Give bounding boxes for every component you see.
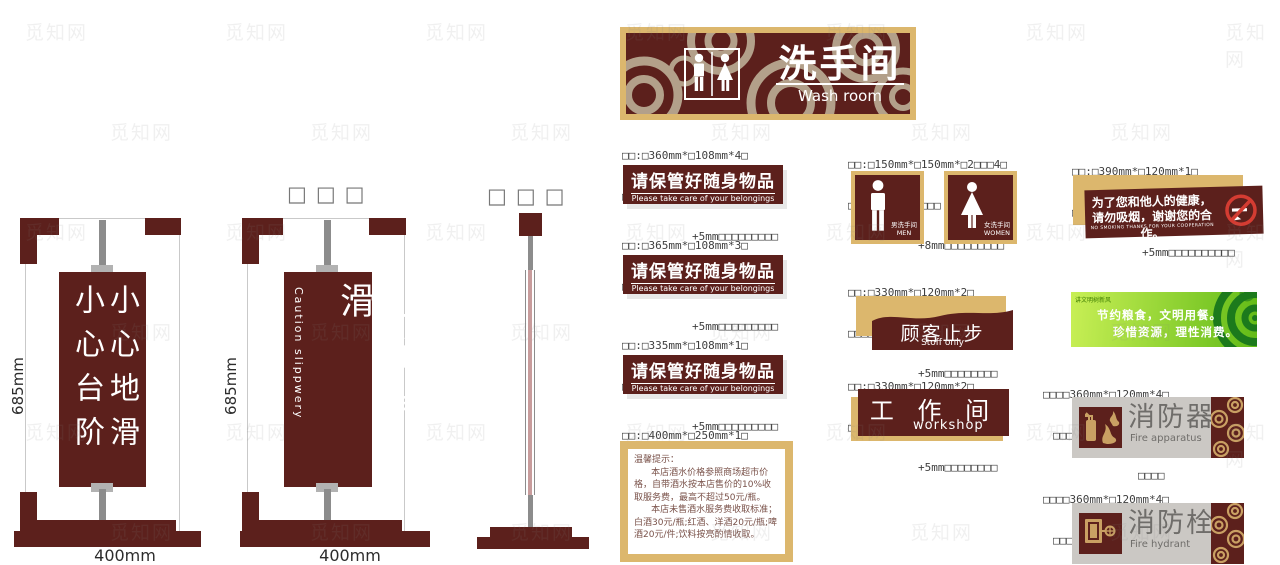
men-label-zh: 男洗手间 <box>891 221 917 229</box>
watermark-text: 觅知网 <box>510 118 573 145</box>
fire-hydrant-icon <box>1079 513 1122 554</box>
fire-hydrant-en: Fire hydrant <box>1130 539 1190 550</box>
watermark-text: 觅知网 <box>425 18 488 45</box>
female-icon <box>957 179 987 239</box>
stand2-height-dimension: 685mm <box>222 341 240 431</box>
belongings-sign-1: 请保管好随身物品 Please take care of your belong… <box>623 165 783 204</box>
circles-panel <box>1211 503 1244 564</box>
women-label: 女洗手间 WOMEN <box>984 221 1010 237</box>
washroom-title-en: Wash room <box>776 87 904 105</box>
stand1-base-step <box>30 520 176 531</box>
spec-line: □□:□335mm*□108mm*1□ <box>622 339 778 353</box>
workshop-sign: 工 作 间 workshop <box>858 389 1009 436</box>
belongings-zh: 请保管好随身物品 <box>623 357 783 382</box>
staff-only-sign: 顾客止步 Stoff only <box>872 306 1013 350</box>
green-line2: 珍惜资源，理性消费。 <box>1113 324 1238 340</box>
signage-design-sheet: 小心台阶 小心地滑 685mm 400mm □□□ Caution slippw… <box>0 0 1280 565</box>
stand1-bracket-top-right <box>145 218 181 235</box>
green-line1: 节约粮食，文明用餐。 <box>1097 307 1222 323</box>
stand2-title-placeholder-boxes: □□□ <box>287 182 374 206</box>
spec-line: □□:□360mm*□108mm*4□ <box>622 149 778 163</box>
men-label-en: MEN <box>891 229 917 237</box>
spec-line: +5mm□□□□□□□□□□ <box>1072 246 1235 260</box>
stand3-title-placeholder-boxes: □□□ <box>487 184 574 208</box>
stand2-english-caption: Caution slippwery <box>292 287 305 482</box>
tips-paragraph-2: 本店未售酒水服务费收取标准；白酒30元/瓶;红酒、洋酒20元/瓶;啤酒20元/件… <box>634 504 779 542</box>
stand3-base-step <box>490 527 572 537</box>
stand3-pole-bottom <box>528 495 533 529</box>
belongings-zh: 请保管好随身物品 <box>623 257 783 282</box>
watermark-text: 觅知网 <box>225 18 288 45</box>
women-label-zh: 女洗手间 <box>984 221 1010 229</box>
watermark-text: 觅知网 <box>25 18 88 45</box>
watermark-text: 觅知网 <box>425 418 488 445</box>
stand2-base <box>240 531 430 547</box>
watermark-text: 觅知网 <box>510 318 573 345</box>
no-smoking-icon <box>1224 193 1259 228</box>
watermark-text: 觅知网 <box>310 118 373 145</box>
stand2-banner: Caution slippwery 小心地滑 <box>284 272 372 487</box>
workshop-en: workshop <box>913 418 984 433</box>
stand2-text: 小心地滑 <box>328 282 432 482</box>
washroom-title-zh: 洗手间 <box>774 33 906 88</box>
stand2-bracket-top-left-vertical <box>242 218 259 264</box>
tips-title: 温馨提示： <box>634 454 779 467</box>
stand1-bracket-top-left-vertical <box>20 218 37 264</box>
fire-hydrant-sign: 消防栓 Fire hydrant <box>1072 503 1244 564</box>
stand1-width-dimension: 400mm <box>70 546 180 565</box>
women-label-en: WOMEN <box>984 229 1010 237</box>
stand2-bracket-top-right <box>369 218 406 235</box>
warm-tips-board: 温馨提示： 本店酒水价格参照商场超市价格，自带酒水按本店售价的10%收取服务费，… <box>620 441 793 562</box>
fire-hydrant-zh: 消防栓 <box>1128 501 1215 540</box>
male-icon <box>864 179 892 239</box>
save-food-sign: 讲文明树新风 节约粮食，文明用餐。 珍惜资源，理性消费。 <box>1071 292 1257 347</box>
belongings-sign-3: 请保管好随身物品 Please take care of your belong… <box>623 355 783 394</box>
watermark-text: 觅知网 <box>1225 18 1280 72</box>
divider-line <box>776 83 904 85</box>
women-restroom-sign: 女洗手间 WOMEN <box>944 171 1017 244</box>
belongings-en: Please take care of your belongings <box>623 384 783 393</box>
fire-extinguisher-icon <box>1079 407 1122 448</box>
belongings-sign-2: 请保管好随身物品 Please take care of your belong… <box>623 255 783 294</box>
stand1-base <box>14 531 201 547</box>
men-restroom-sign: 男洗手间 MEN <box>851 171 924 244</box>
watermark-text: 觅知网 <box>1025 18 1088 45</box>
belongings-en: Please take care of your belongings <box>623 194 783 203</box>
green-tagline: 讲文明树新风 <box>1075 295 1111 304</box>
watermark-text: 觅知网 <box>425 218 488 245</box>
fire-apparatus-sign: 消防器 Fire apparatus <box>1072 397 1244 458</box>
spec-line: □□:□365mm*□108mm*3□ <box>622 239 778 253</box>
tips-paragraph-1: 本店酒水价格参照商场超市价格，自带酒水按本店售价的10%收取服务费，最高不超过5… <box>634 467 779 505</box>
belongings-zh: 请保管好随身物品 <box>623 167 783 192</box>
watermark-text: 觅知网 <box>110 118 173 145</box>
staff-en: Stoff only <box>872 338 1013 348</box>
stand1-height-dimension: 685mm <box>9 341 27 431</box>
belongings-en: Please take care of your belongings <box>623 284 783 293</box>
no-smoking-sign: 为了您和他人的健康， 请勿吸烟，谢谢您的合作。 NO SMOKING THANK… <box>1084 186 1263 239</box>
stand2-base-step <box>254 520 402 531</box>
stand3-pole-top <box>528 236 533 270</box>
washroom-sign: 洗手间 Wash room <box>620 27 916 120</box>
watermark-text: 觅知网 <box>910 518 973 545</box>
stand3-banner-edge <box>525 270 535 495</box>
stand2-width-dimension: 400mm <box>295 546 405 565</box>
fire-apparatus-en: Fire apparatus <box>1130 433 1202 444</box>
fire-apparatus-zh: 消防器 <box>1128 395 1215 434</box>
spec-line: □□:□150mm*□150mm*□2□□□4□ <box>848 158 1007 172</box>
male-female-icon <box>684 48 740 100</box>
circles-panel <box>1211 397 1244 458</box>
stand3-base <box>477 537 589 549</box>
stand1-text-right-column: 小心地滑 <box>104 284 138 484</box>
spec-line: +5mm□□□□□□□□ <box>848 461 997 475</box>
men-label: 男洗手间 MEN <box>891 221 917 237</box>
stand1-text-left-column: 小心台阶 <box>69 284 103 484</box>
stand1-banner: 小心台阶 小心地滑 <box>59 272 146 487</box>
stand3-top-cap <box>519 213 542 236</box>
